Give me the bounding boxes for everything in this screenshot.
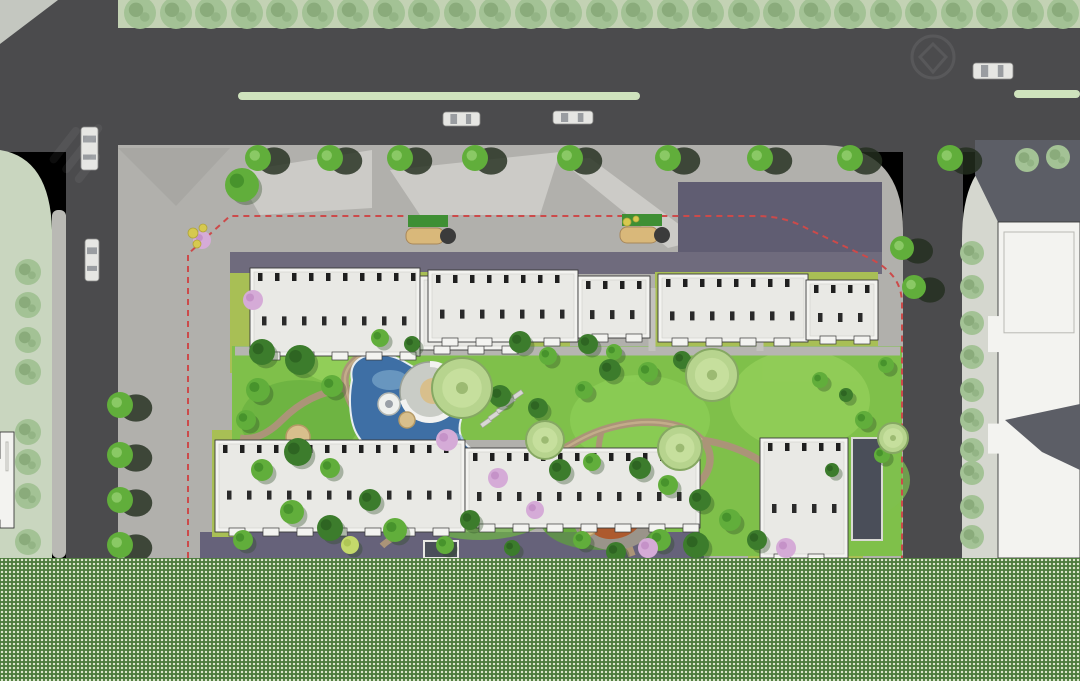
circle (467, 150, 477, 160)
window-tick (342, 445, 347, 453)
window-tick (326, 273, 331, 281)
circle (389, 12, 399, 22)
window-tick (521, 275, 526, 283)
window-tick (440, 310, 445, 319)
balcony-stub (774, 338, 790, 346)
window-tick (473, 453, 478, 461)
lane-stripe (238, 92, 640, 100)
ring-tree-icon (686, 349, 738, 401)
window-tick (487, 275, 492, 283)
window-tick (387, 491, 392, 500)
window-tick (537, 492, 542, 501)
circle (1063, 12, 1073, 22)
balcony-stub (615, 524, 631, 532)
circle (253, 343, 264, 354)
window-tick (557, 492, 562, 501)
window-tick (360, 273, 365, 281)
building-south-block-e (760, 438, 848, 558)
window-tick (603, 281, 608, 289)
window-tick (790, 311, 795, 320)
window-tick (402, 316, 407, 325)
circle (972, 389, 979, 396)
balcony-stub (442, 338, 458, 346)
circle (578, 384, 586, 392)
circle (439, 539, 447, 547)
balcony-stub (366, 352, 382, 360)
circle (246, 294, 254, 302)
roof-plate (0, 432, 14, 528)
window-tick (460, 310, 465, 319)
window-tick (393, 445, 398, 453)
circle (602, 12, 612, 22)
circle (1058, 156, 1065, 163)
balcony-stub (706, 338, 722, 346)
street-tree-icon (960, 241, 984, 265)
window-tick (832, 504, 837, 513)
circle (641, 365, 649, 373)
circle (374, 332, 382, 340)
balcony-stub (581, 524, 597, 532)
circle (581, 337, 589, 345)
window-tick (287, 491, 292, 500)
car (85, 239, 99, 281)
street-tree-icon (15, 259, 41, 285)
street-tree-icon (960, 525, 984, 549)
window-tick (812, 504, 817, 513)
circle (289, 350, 302, 363)
circle (858, 414, 866, 422)
window-tick (447, 491, 452, 500)
circle (972, 356, 979, 363)
bench-shade (440, 228, 456, 244)
window-tick (617, 492, 622, 501)
circle (880, 360, 887, 367)
window-tick (734, 279, 739, 287)
window-tick (814, 285, 819, 293)
paving-purple-northeast (678, 182, 882, 256)
window-tick (258, 273, 263, 281)
window-tick (500, 310, 505, 319)
circle (850, 12, 860, 22)
balcony-stub (626, 334, 642, 342)
window-tick (427, 445, 432, 453)
circle (250, 150, 260, 160)
notch (0, 459, 2, 495)
window-tick (377, 273, 382, 281)
street-tree-icon (960, 438, 984, 462)
window-tick (507, 453, 512, 461)
circle (531, 12, 541, 22)
lane-stripe (1014, 90, 1080, 98)
window-tick (342, 316, 347, 325)
window-tick (411, 273, 416, 281)
window-tick (436, 275, 441, 283)
circle (972, 322, 979, 329)
circle (692, 493, 701, 502)
circle (608, 347, 615, 354)
circle (972, 506, 979, 513)
window-tick (555, 275, 560, 283)
window-tick (838, 313, 843, 322)
circle (566, 12, 576, 22)
blossom-tree-icon (436, 429, 458, 451)
window-tick (848, 285, 853, 293)
window-tick (274, 445, 279, 453)
circle (392, 150, 402, 160)
circle (632, 461, 641, 470)
circle (230, 174, 244, 188)
circle (239, 413, 247, 421)
window-tick (831, 285, 836, 293)
street-tree-icon (960, 311, 984, 335)
circle (576, 534, 584, 542)
building-west-sliver (0, 432, 14, 528)
window-tick (560, 310, 565, 319)
circle (492, 389, 501, 398)
circle (602, 363, 611, 372)
street-tree-icon (15, 327, 41, 353)
circle (28, 461, 36, 469)
balcony-stub (332, 352, 348, 360)
balcony-stub (547, 524, 563, 532)
car-body (973, 63, 1013, 79)
circle (247, 12, 257, 22)
circle (112, 492, 122, 502)
left-sidewalk-strip (52, 210, 66, 558)
car-glass (981, 65, 988, 77)
circle (322, 150, 332, 160)
window-tick (382, 316, 387, 325)
road-east (903, 150, 963, 558)
balcony-stub (263, 528, 279, 536)
circle (660, 150, 670, 160)
circle (661, 478, 669, 486)
window-tick (267, 491, 272, 500)
window-tick (490, 453, 495, 461)
car-glass (87, 266, 97, 271)
window-tick (347, 491, 352, 500)
window-tick (670, 311, 675, 320)
circle (506, 543, 513, 550)
circle (283, 504, 293, 514)
window-tick (610, 310, 615, 319)
deck-circle (399, 412, 415, 428)
window-tick (785, 443, 790, 451)
window-tick (227, 491, 232, 500)
bench-shade (654, 227, 670, 243)
circle (906, 280, 916, 290)
circle (541, 436, 549, 444)
window-tick (325, 445, 330, 453)
circle (673, 12, 683, 22)
circle (722, 513, 731, 522)
circle (362, 493, 371, 502)
window-tick (292, 273, 297, 281)
building-north-block-b (428, 270, 650, 346)
notch (988, 424, 1000, 454)
balcony-stub (740, 338, 756, 346)
car (443, 112, 480, 126)
circle (439, 433, 448, 442)
circle (424, 12, 434, 22)
window-tick (657, 492, 662, 501)
circle (708, 12, 718, 22)
car-glass (87, 247, 97, 254)
window-tick (343, 273, 348, 281)
car-body (553, 111, 593, 124)
balcony-stub (544, 338, 560, 346)
window-tick (597, 492, 602, 501)
window-tick (590, 310, 595, 319)
blossom-tree-icon (638, 538, 658, 558)
circle (353, 12, 363, 22)
window-tick (517, 492, 522, 501)
window-tick (257, 445, 262, 453)
yellow-shrub-icon (188, 228, 198, 238)
window-tick (666, 279, 671, 287)
circle (542, 350, 550, 358)
circle (676, 354, 684, 362)
street-tree-icon (1015, 148, 1039, 172)
circle (28, 431, 36, 439)
circle (842, 150, 852, 160)
circle (318, 12, 328, 22)
circle (28, 541, 36, 549)
yellow-shrub-icon (623, 218, 631, 226)
window-tick (710, 311, 715, 320)
window-tick (407, 491, 412, 500)
roof-inner (810, 284, 874, 336)
street-tree-icon (15, 419, 41, 445)
circle (288, 443, 300, 455)
circle (323, 461, 331, 469)
circle (972, 419, 979, 426)
blossom-tree-icon (526, 501, 544, 519)
window-tick (700, 279, 705, 287)
circle (495, 12, 505, 22)
roof-inner (219, 444, 461, 528)
balcony-stub (434, 346, 450, 354)
roof-inner (764, 442, 844, 554)
balcony-stub (476, 338, 492, 346)
window-tick (282, 316, 287, 325)
circle (112, 397, 122, 407)
car (973, 63, 1013, 79)
circle (562, 150, 572, 160)
balcony-stub (468, 346, 484, 354)
window-tick (223, 445, 228, 453)
circle (531, 401, 539, 409)
circle (529, 504, 536, 511)
window-tick (470, 275, 475, 283)
window-tick (410, 445, 415, 453)
window-tick (751, 279, 756, 287)
site-plan (0, 0, 1080, 558)
street-tree-icon (960, 378, 984, 402)
street-tree-icon (960, 408, 984, 432)
window-tick (768, 443, 773, 451)
yellow-shrub-icon (633, 216, 639, 222)
balcony-stub (513, 524, 529, 532)
window-tick (637, 492, 642, 501)
window-tick (262, 316, 267, 325)
roof-inner (432, 274, 574, 338)
window-tick (362, 316, 367, 325)
car-glass (561, 113, 568, 122)
window-tick (480, 310, 485, 319)
circle (460, 12, 470, 22)
window-tick (792, 504, 797, 513)
circle (744, 12, 754, 22)
circle (211, 12, 221, 22)
blossom-tree-icon (488, 468, 508, 488)
window-tick (427, 491, 432, 500)
circle (972, 536, 979, 543)
building-north-block-c (658, 274, 878, 346)
circle (324, 379, 333, 388)
window-tick (626, 453, 631, 461)
circle (827, 465, 833, 471)
circle (972, 252, 979, 259)
street-tree-icon (15, 359, 41, 385)
circle (112, 447, 122, 457)
circle (637, 12, 647, 22)
street-tree-icon (960, 495, 984, 519)
circle (28, 339, 36, 347)
street-tree-icon (15, 529, 41, 555)
ring-tree-icon (878, 423, 908, 453)
building-neighbor-tower (988, 222, 1080, 558)
circle (814, 375, 821, 382)
hedge (408, 215, 448, 227)
car-glass (466, 114, 471, 124)
circle (890, 435, 896, 441)
car-glass (578, 113, 584, 122)
circle (886, 12, 896, 22)
circle (28, 495, 36, 503)
window-tick (586, 281, 591, 289)
car-body (443, 112, 480, 126)
car-body (85, 239, 99, 281)
street-tree-icon (960, 461, 984, 485)
window-tick (322, 316, 327, 325)
window-tick (240, 445, 245, 453)
window-tick (376, 445, 381, 453)
circle (236, 533, 244, 541)
street-tree-icon (15, 449, 41, 475)
window-tick (770, 311, 775, 320)
circle (112, 537, 122, 547)
circle (957, 12, 967, 22)
circle (641, 542, 649, 550)
window-tick (630, 310, 635, 319)
window-tick (327, 491, 332, 500)
ring-tree-icon (432, 358, 492, 418)
window-tick (538, 275, 543, 283)
yellow-shrub-icon (199, 224, 207, 232)
balcony-stub (433, 528, 449, 536)
window-tick (858, 313, 863, 322)
window-tick (477, 492, 482, 501)
circle (406, 339, 413, 346)
circle (282, 12, 292, 22)
window-tick (520, 310, 525, 319)
circle (972, 449, 979, 456)
balcony-stub (297, 528, 313, 536)
street-tree-icon (15, 292, 41, 318)
window-tick (577, 492, 582, 501)
circle (463, 513, 471, 521)
circle (140, 12, 150, 22)
window-tick (309, 273, 314, 281)
balcony-stub (683, 524, 699, 532)
window-tick (730, 311, 735, 320)
circle (609, 545, 617, 553)
window-tick (453, 275, 458, 283)
car-glass (998, 65, 1004, 77)
circle (28, 371, 36, 379)
window-tick (690, 311, 695, 320)
ring-tree-icon (526, 421, 564, 459)
circle (176, 12, 186, 22)
yellow-shrub-icon (193, 240, 201, 248)
circle (921, 12, 931, 22)
circle (815, 12, 825, 22)
window-tick (307, 491, 312, 500)
window-tick (750, 311, 755, 320)
circle (779, 542, 787, 550)
window-tick (247, 491, 252, 500)
circle (687, 536, 698, 547)
circle (841, 390, 847, 396)
window-tick (637, 281, 642, 289)
circle (254, 463, 263, 472)
car-glass (450, 114, 457, 124)
window-tick (836, 443, 841, 451)
circle (552, 463, 561, 472)
balcony-stub (820, 336, 836, 344)
window-tick (818, 313, 823, 322)
circle (344, 539, 352, 547)
circle (456, 382, 468, 394)
car (553, 111, 593, 124)
circle (752, 150, 762, 160)
window-tick (504, 275, 509, 283)
window-tick (717, 279, 722, 287)
window-tick (540, 310, 545, 319)
window-tick (865, 285, 870, 293)
circle (249, 382, 259, 392)
street-tree-icon (960, 345, 984, 369)
circle (586, 456, 594, 464)
window-tick (768, 279, 773, 287)
circle (779, 12, 789, 22)
window-tick (359, 445, 364, 453)
window-tick (683, 279, 688, 287)
window-tick (394, 273, 399, 281)
window-tick (620, 281, 625, 289)
window-tick (772, 504, 777, 513)
window-tick (497, 492, 502, 501)
street-tree-icon (1046, 145, 1070, 169)
window-tick (819, 443, 824, 451)
circle (972, 472, 979, 479)
circle (894, 241, 904, 251)
window-tick (302, 316, 307, 325)
circle (28, 304, 36, 312)
circle (707, 370, 717, 380)
balcony-stub (672, 338, 688, 346)
